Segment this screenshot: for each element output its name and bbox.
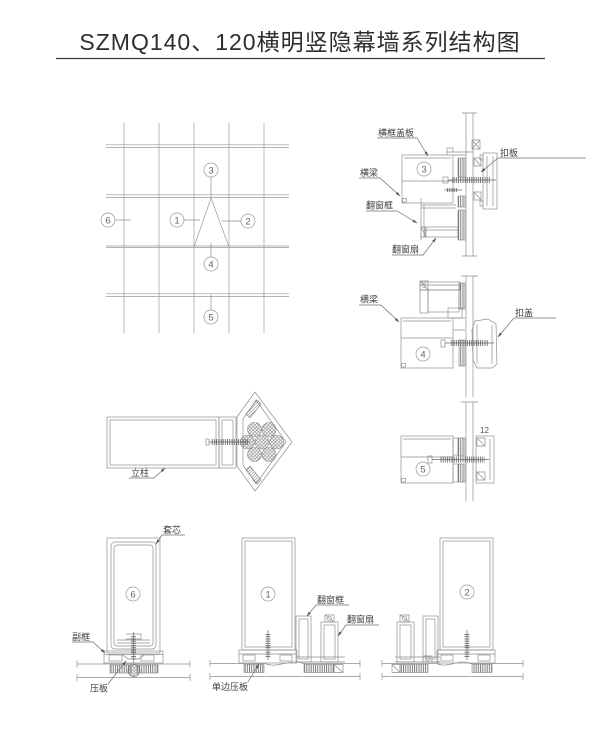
label-sleeve-core: 套芯 xyxy=(163,524,181,535)
drawing-page: SZMQ140、120横明竖隐幕墙系列结构图 xyxy=(0,0,600,736)
title-block: SZMQ140、120横明竖隐幕墙系列结构图 xyxy=(56,29,545,59)
detail-2-num: 2 xyxy=(464,587,469,598)
label-mullion: 立柱 xyxy=(131,467,149,478)
glass-thickness-dim: 12 xyxy=(480,426,489,435)
label-vent-frame-d3: 翻窗框 xyxy=(366,200,393,211)
label-beam-d4: 横梁 xyxy=(360,294,378,305)
detail-3-num: 3 xyxy=(421,164,426,175)
background xyxy=(0,0,600,736)
grid-callout-1-num: 1 xyxy=(174,215,179,226)
grid-callout-4-num: 4 xyxy=(208,259,213,270)
detail-1-num: 1 xyxy=(265,589,270,600)
label-transom-cover-plate: 横框盖板 xyxy=(378,127,414,138)
label-buckle-cover: 扣盖 xyxy=(515,307,533,318)
grid-callout-5-num: 5 xyxy=(208,312,213,323)
label-buckle-plate: 扣板 xyxy=(500,147,518,158)
label-beam-d3: 横梁 xyxy=(360,167,378,178)
detail-6-num: 6 xyxy=(130,589,135,600)
label-sub-frame: 副框 xyxy=(72,631,90,642)
grid-callout-2-num: 2 xyxy=(245,216,250,227)
label-single-side-pressure-plate: 单边压板 xyxy=(212,681,248,692)
detail-5-num: 5 xyxy=(420,464,425,475)
grid-callout-3-num: 3 xyxy=(208,165,213,176)
structural-drawing-canvas: SZMQ140、120横明竖隐幕墙系列结构图 xyxy=(0,0,600,736)
label-pressure-plate: 压板 xyxy=(90,683,108,694)
label-vent-sash-d3: 翻窗扇 xyxy=(392,244,419,255)
label-vent-sash-d1: 翻窗扇 xyxy=(347,614,374,625)
grid-callout-6-num: 6 xyxy=(105,215,110,226)
page-title: SZMQ140、120横明竖隐幕墙系列结构图 xyxy=(79,29,520,55)
detail-4-num: 4 xyxy=(420,349,425,360)
label-vent-frame-d1: 翻窗框 xyxy=(317,594,344,605)
